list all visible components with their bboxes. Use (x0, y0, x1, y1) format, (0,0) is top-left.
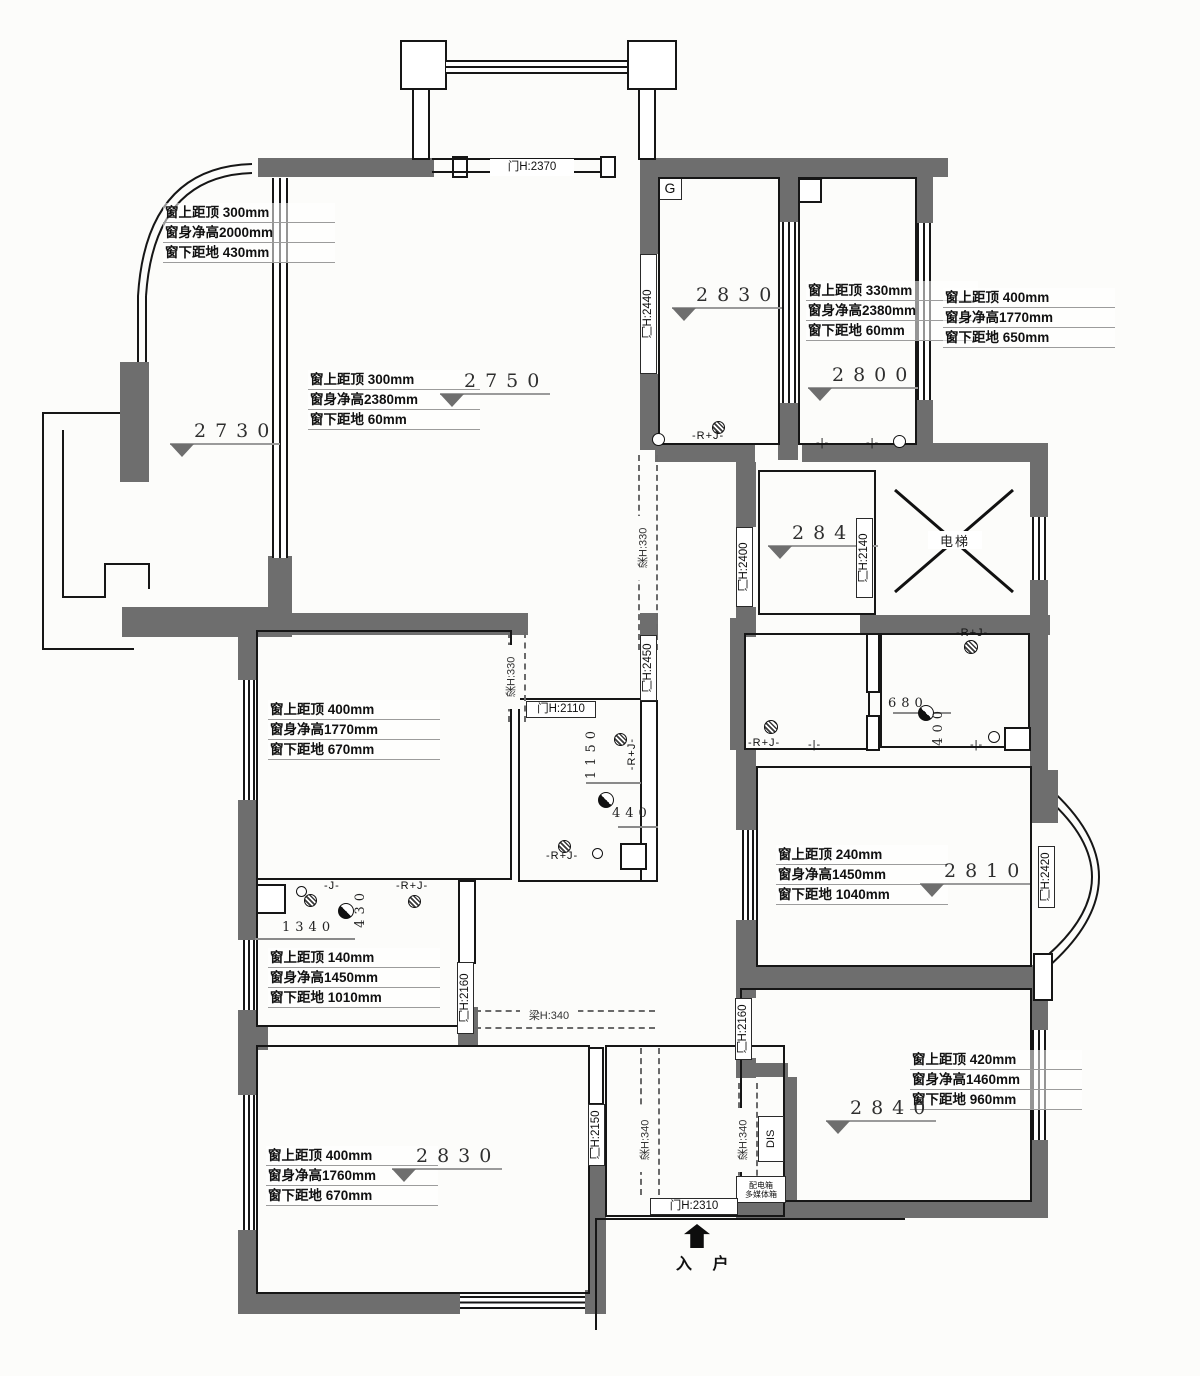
partition-wall (458, 880, 476, 964)
wall (640, 158, 658, 254)
electrical-label: -|- (808, 739, 821, 751)
level-triangle-icon (170, 444, 194, 457)
wall (736, 462, 756, 527)
entry-label: 入 户 (676, 1250, 736, 1274)
window-spec-bath-window: 窗上距顶 140mm窗身净高1450mm窗下距地 1010mm (268, 948, 440, 1008)
beam-line (656, 455, 658, 650)
window-spec-line: 窗身净高2000mm (163, 223, 335, 243)
wall (778, 403, 798, 460)
level-value: 2750 (440, 370, 550, 392)
electrical-label: -|- (970, 739, 983, 751)
window-spec-line: 窗下距地 670mm (268, 740, 440, 760)
wall (238, 800, 258, 878)
door-label: 门H:2450 (640, 635, 657, 701)
wall (655, 443, 755, 462)
window-spec-line: 窗上距顶 420mm (910, 1050, 1082, 1070)
dimension: 680 (888, 696, 928, 711)
electrical-label: -J- (324, 880, 340, 892)
wall (238, 878, 258, 940)
wall (238, 1050, 258, 1095)
beam-label: 梁H:330 (504, 645, 520, 709)
level-triangle-icon (826, 1121, 850, 1134)
dimension: 430 (353, 888, 368, 928)
beam-label: 梁H:340 (520, 1009, 578, 1023)
balcony-rail (638, 88, 656, 160)
electrical-label: -|- (816, 437, 829, 449)
dimension: 400 (931, 706, 946, 746)
door-label: 门H:2110 (526, 701, 596, 718)
wall (730, 618, 744, 750)
window-spec-line: 窗上距顶 300mm (163, 203, 335, 223)
wall (736, 750, 756, 830)
dimension: 1150 (584, 726, 599, 779)
level-marker: 2840 (826, 1097, 936, 1134)
wall (588, 1165, 606, 1314)
beam-label: 梁H:330 (636, 516, 652, 580)
window-spec-line: 窗下距地 650mm (943, 328, 1115, 348)
shower-tray (256, 884, 286, 914)
level-marker: 2800 (808, 364, 918, 401)
wall-line (62, 430, 64, 598)
door-label: 门H:2140 (856, 518, 873, 598)
dimension: 440 (612, 806, 652, 821)
level-triangle-icon (808, 388, 832, 401)
wall (255, 1292, 460, 1314)
floorplan-canvas: G 电梯 DIS 配电箱 多媒体箱 入 户 窗上距顶 300mm窗身净高2000… (0, 0, 1200, 1376)
entry-arrow-icon (684, 1224, 710, 1248)
window (446, 60, 627, 74)
level-triangle-icon (392, 1169, 416, 1182)
level-marker: 2810 (920, 860, 1030, 897)
balcony-post (627, 40, 677, 90)
window-spec-line: 窗身净高1770mm (268, 720, 440, 740)
window-spec-line: 窗下距地 60mm (308, 410, 480, 430)
dim-leader (255, 938, 355, 940)
dimension: 1340 (282, 920, 335, 935)
switch-symbol (408, 895, 421, 908)
wall (238, 632, 258, 680)
closet-square (798, 178, 822, 203)
door-label: 门H:2420 (1038, 846, 1055, 908)
window-spec-line: 窗上距顶 140mm (268, 948, 440, 968)
switch-symbol (964, 640, 978, 654)
shower-tray (1004, 727, 1031, 751)
beam-line (658, 1048, 660, 1195)
window (243, 680, 255, 800)
balcony-post (400, 40, 447, 90)
door-label: 门H:2160 (735, 998, 752, 1060)
electrical-label: -R+J- (626, 738, 638, 770)
window (243, 940, 255, 1010)
wall (1030, 462, 1048, 517)
wall (658, 158, 948, 177)
wall (268, 556, 292, 613)
level-marker: 2750 (440, 370, 550, 407)
switch-symbol (764, 720, 778, 734)
elevator-label: 电梯 (928, 531, 982, 549)
level-marker: 2830 (392, 1145, 502, 1182)
wall (408, 158, 434, 177)
level-triangle-icon (440, 394, 464, 407)
electrical-label: -R+J- (546, 850, 578, 862)
window-spec-line: 窗上距顶 400mm (268, 700, 440, 720)
wall-line (42, 412, 120, 414)
window-spec-balcony-window: 窗上距顶 300mm窗身净高2000mm窗下距地 430mm (163, 203, 335, 263)
window-spec-line: 窗身净高1460mm (910, 1070, 1082, 1090)
level-value: 2800 (808, 364, 918, 386)
window-spec-east-outer-window: 窗上距顶 400mm窗身净高1770mm窗下距地 650mm (943, 288, 1115, 348)
door-label: 门H:2150 (588, 1104, 605, 1166)
switch-symbol (304, 894, 317, 907)
level-marker: 2730 (170, 420, 280, 457)
electrical-label: -R+J- (692, 430, 724, 442)
electrical-label: -|- (866, 437, 879, 449)
door-label: 门H:2160 (457, 962, 474, 1034)
wall (802, 443, 1048, 462)
power-box-line1: 配电箱 (749, 1181, 773, 1190)
level-marker: 2830 (672, 284, 782, 321)
door-label: 门H:2370 (490, 159, 574, 176)
wall (915, 177, 933, 223)
wall-line (42, 648, 134, 650)
wall (1030, 1140, 1048, 1218)
power-box: 配电箱 多媒体箱 (736, 1176, 786, 1203)
window-spec-line: 窗身净高1450mm (268, 968, 440, 988)
beam-line (475, 1027, 655, 1029)
window-spec-line: 窗上距顶 400mm (943, 288, 1115, 308)
wall (238, 1010, 258, 1025)
window-spec-midleft-window: 窗上距顶 400mm窗身净高1770mm窗下距地 670mm (268, 700, 440, 760)
level-value: 2810 (920, 860, 1030, 882)
level-value: 2830 (672, 284, 782, 306)
wall (860, 615, 1050, 635)
dim-leader (586, 782, 641, 784)
level-value: 2830 (392, 1145, 502, 1167)
door-label: 门H:2400 (736, 527, 753, 607)
wall-line (62, 596, 106, 598)
window (742, 830, 754, 920)
beam-label: 梁H:340 (736, 1108, 752, 1172)
window-spec-line: 窗下距地 430mm (163, 243, 335, 263)
partition-wall (588, 1047, 604, 1105)
electrical-label: -R+J- (748, 737, 780, 749)
window-spec-line: 窗下距地 670mm (266, 1186, 438, 1206)
wall-line (595, 1218, 597, 1330)
wall (1033, 770, 1058, 823)
partition-wall (866, 633, 880, 693)
window (782, 222, 796, 403)
light-symbol (988, 731, 1000, 743)
lamp-symbol (338, 903, 354, 919)
wall-line (148, 563, 150, 589)
door-label: 门H:2440 (640, 254, 657, 374)
wall-line (104, 563, 150, 565)
balcony-rail (412, 88, 430, 160)
wall (778, 177, 798, 222)
wall-line (104, 565, 106, 598)
level-value: 2730 (170, 420, 280, 442)
light-symbol (592, 848, 603, 859)
beam-label: 梁H:340 (638, 1108, 654, 1172)
door-jamb (600, 156, 616, 178)
level-triangle-icon (672, 308, 696, 321)
window (460, 1296, 585, 1309)
shower-tray (620, 843, 647, 870)
wall (740, 965, 1048, 990)
dim-leader (618, 826, 658, 828)
wall-line (595, 1218, 905, 1220)
room-lobby-inner (744, 633, 870, 750)
level-value: 2840 (826, 1097, 936, 1119)
dis-label: DIS (758, 1116, 784, 1162)
partition-wall (866, 715, 880, 751)
electrical-label: -R+J- (396, 880, 428, 892)
door-label: 门H:2310 (650, 1198, 738, 1215)
bay-step (1033, 953, 1053, 1001)
window-spec-line: 窗身净高1770mm (943, 308, 1115, 328)
wall-line (42, 412, 44, 650)
electrical-label: -R+J- (956, 627, 988, 639)
window-spec-line: 窗下距地 1010mm (268, 988, 440, 1008)
light-symbol (893, 435, 906, 448)
level-triangle-icon (768, 546, 792, 559)
power-box-line2: 多媒体箱 (745, 1190, 777, 1199)
window (1032, 517, 1046, 580)
level-triangle-icon (920, 884, 944, 897)
wall (258, 158, 408, 177)
wall (120, 362, 149, 482)
window (243, 1095, 255, 1230)
light-symbol (652, 433, 665, 446)
